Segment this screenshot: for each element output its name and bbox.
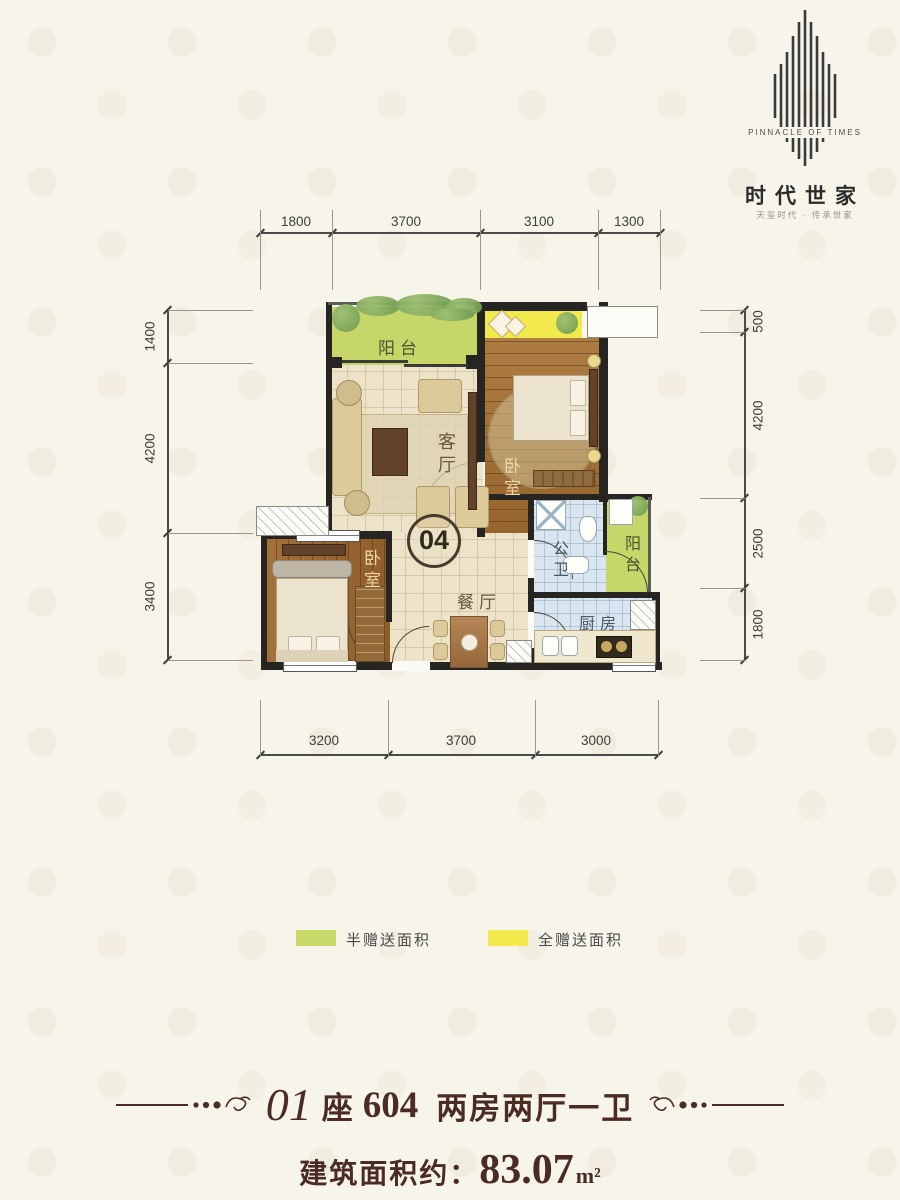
- dim-value: 1800: [751, 595, 766, 655]
- extension-line: [480, 210, 481, 290]
- tv-cabinet: [468, 392, 477, 510]
- balcony-railing: [648, 497, 651, 595]
- flourish-left-icon: [116, 1093, 256, 1117]
- wall-segment: [477, 305, 485, 462]
- legend-swatch-full-gifted: [488, 930, 528, 946]
- bed-canopy: [272, 560, 352, 578]
- legend-label-full-gifted: 全赠送面积: [538, 929, 623, 950]
- area-label: 建筑面积约：: [299, 1152, 479, 1192]
- extension-line: [260, 700, 261, 756]
- table-decor: [461, 634, 478, 651]
- flourish-right-icon: [644, 1093, 784, 1117]
- room-label-bedroom-master: 卧室: [498, 450, 523, 508]
- extension-line: [168, 363, 253, 364]
- room-label-bedroom-second: 卧室: [358, 542, 383, 600]
- greenery-icon: [430, 308, 474, 321]
- blanket-fold: [276, 650, 348, 662]
- wall-segment: [328, 357, 342, 368]
- unit-building-word: 座: [322, 1083, 353, 1128]
- area-value: 83.07: [479, 1146, 574, 1194]
- floorplan-page: PINNACLE OF TIMES 时代世家 天玺时代 · 传承世家 1800 …: [0, 0, 900, 1200]
- brand-name-en: PINNACLE OF TIMES: [715, 127, 895, 138]
- extension-line: [700, 332, 745, 333]
- dining-chair: [490, 620, 505, 637]
- brand-logo: PINNACLE OF TIMES 时代世家 天玺时代 · 传承世家: [715, 6, 895, 226]
- wall-segment: [475, 302, 587, 311]
- dim-line: [744, 310, 746, 660]
- legend-label-half-gifted: 半赠送面积: [346, 929, 431, 950]
- dresser: [533, 470, 595, 487]
- dim-value: 4200: [751, 386, 766, 446]
- toilet: [579, 516, 597, 542]
- dim-line: [260, 754, 658, 756]
- burner: [616, 641, 627, 652]
- unit-number-badge: 04: [407, 514, 461, 568]
- ac-platform-hatched: [256, 506, 329, 536]
- building-spire-icon: [715, 6, 895, 176]
- extension-line: [700, 660, 745, 661]
- extension-line: [168, 310, 253, 311]
- room-label-living: 客厅: [433, 426, 459, 484]
- dining-chair: [433, 643, 448, 660]
- dim-value: 3400: [143, 567, 158, 627]
- dim-value: 1400: [143, 307, 158, 367]
- wall-segment: [261, 531, 267, 670]
- extension-line: [168, 660, 253, 661]
- dining-chair: [433, 620, 448, 637]
- unit-building-number: 01: [266, 1082, 312, 1128]
- kitchen-sink: [542, 636, 559, 656]
- shower: [536, 500, 566, 530]
- sliding-door-leaf: [342, 360, 408, 363]
- greenery-icon: [356, 296, 400, 316]
- extension-line: [535, 700, 536, 756]
- unit-room-number: 604: [363, 1084, 419, 1127]
- dim-value: 1300: [599, 214, 659, 229]
- headboard-shelf: [282, 544, 346, 556]
- side-table: [336, 380, 362, 406]
- dim-value: 500: [751, 292, 766, 352]
- pillow: [570, 410, 586, 436]
- extension-line: [700, 310, 745, 311]
- area-row: 建筑面积约： 83.07 m²: [0, 1146, 900, 1194]
- dim-value: 3200: [294, 733, 354, 748]
- dim-value: 1800: [266, 214, 326, 229]
- sliding-door-leaf: [404, 364, 468, 367]
- side-table: [344, 490, 370, 516]
- pillow: [570, 380, 586, 406]
- wall-segment: [386, 537, 392, 622]
- dim-value: 3100: [509, 214, 569, 229]
- dim-value: 3000: [566, 733, 626, 748]
- extension-line: [660, 210, 661, 290]
- kitchen-sink: [561, 636, 578, 656]
- washing-machine: [609, 499, 633, 525]
- extension-line: [388, 700, 389, 756]
- bedside-lamp: [587, 354, 601, 368]
- dim-value: 4200: [143, 419, 158, 479]
- area-unit: m²: [576, 1163, 601, 1189]
- armchair: [418, 379, 462, 413]
- extension-line: [700, 498, 745, 499]
- room-label-balcony-right: 阳台: [618, 527, 642, 585]
- bedside-lamp: [587, 449, 601, 463]
- extension-line: [700, 588, 745, 589]
- dining-chair: [490, 643, 505, 660]
- ac-platform: [587, 306, 658, 338]
- legend-swatch-half-gifted: [296, 930, 336, 946]
- extension-line: [332, 210, 333, 290]
- room-label-balcony-top: 阳台: [369, 334, 431, 359]
- coffee-table: [372, 428, 408, 476]
- burner: [601, 641, 612, 652]
- brand-name-cn: 时代世家: [715, 180, 895, 210]
- plant-icon: [556, 312, 578, 334]
- extension-line: [260, 210, 261, 290]
- wall-segment: [466, 355, 480, 369]
- extension-line: [168, 533, 253, 534]
- extension-line: [658, 700, 659, 756]
- dim-value: 3700: [376, 214, 436, 229]
- wall-segment: [603, 497, 607, 555]
- room-label-dining: 餐厅: [448, 588, 510, 613]
- unit-title-row: 01 座 604 两房两厅一卫: [0, 1074, 900, 1136]
- fridge-space: [630, 600, 656, 630]
- dim-value: 3700: [431, 733, 491, 748]
- headboard: [589, 369, 598, 447]
- cabinet: [506, 640, 532, 663]
- brand-tagline: 天玺时代 · 传承世家: [715, 209, 895, 221]
- room-label-kitchen: 厨房: [570, 610, 630, 634]
- sofa: [332, 398, 362, 496]
- room-label-bathroom: 公卫: [546, 533, 570, 589]
- unit-layout-description: 两房两厅一卫: [436, 1083, 634, 1128]
- dim-value: 2500: [751, 514, 766, 574]
